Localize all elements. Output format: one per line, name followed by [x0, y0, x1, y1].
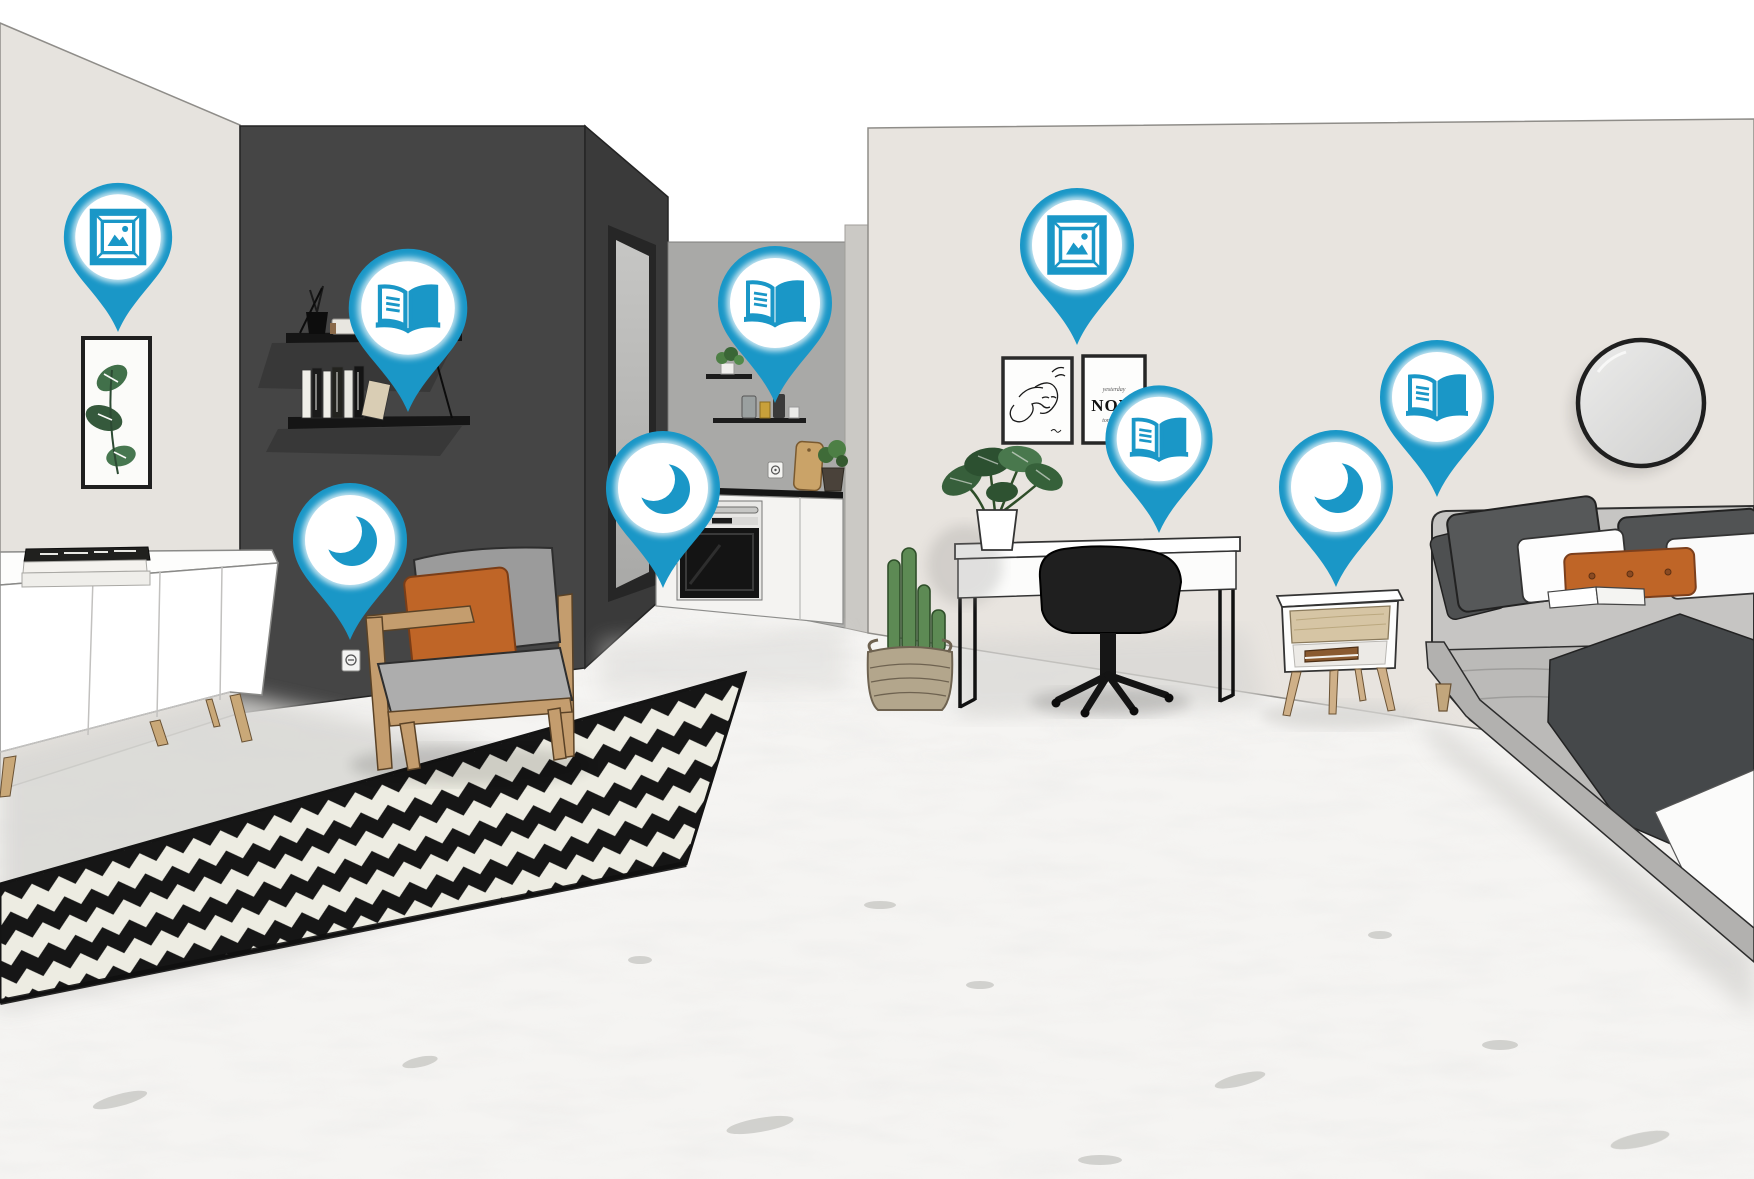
wall-return-edge [845, 225, 868, 633]
kitchen-shelf-lower [713, 418, 806, 423]
outlet-left [342, 650, 360, 671]
cutting-board [793, 441, 823, 491]
poster-text-top: yesterday [1102, 387, 1126, 393]
book-stack [22, 547, 150, 587]
kitchen-outlet [768, 462, 783, 478]
framed-art-monstera [82, 338, 150, 487]
poster-line-art [1003, 358, 1072, 443]
room-scene: yesterday NOW tomorrow [0, 0, 1754, 1179]
kitchen-shelf-upper [706, 374, 752, 379]
